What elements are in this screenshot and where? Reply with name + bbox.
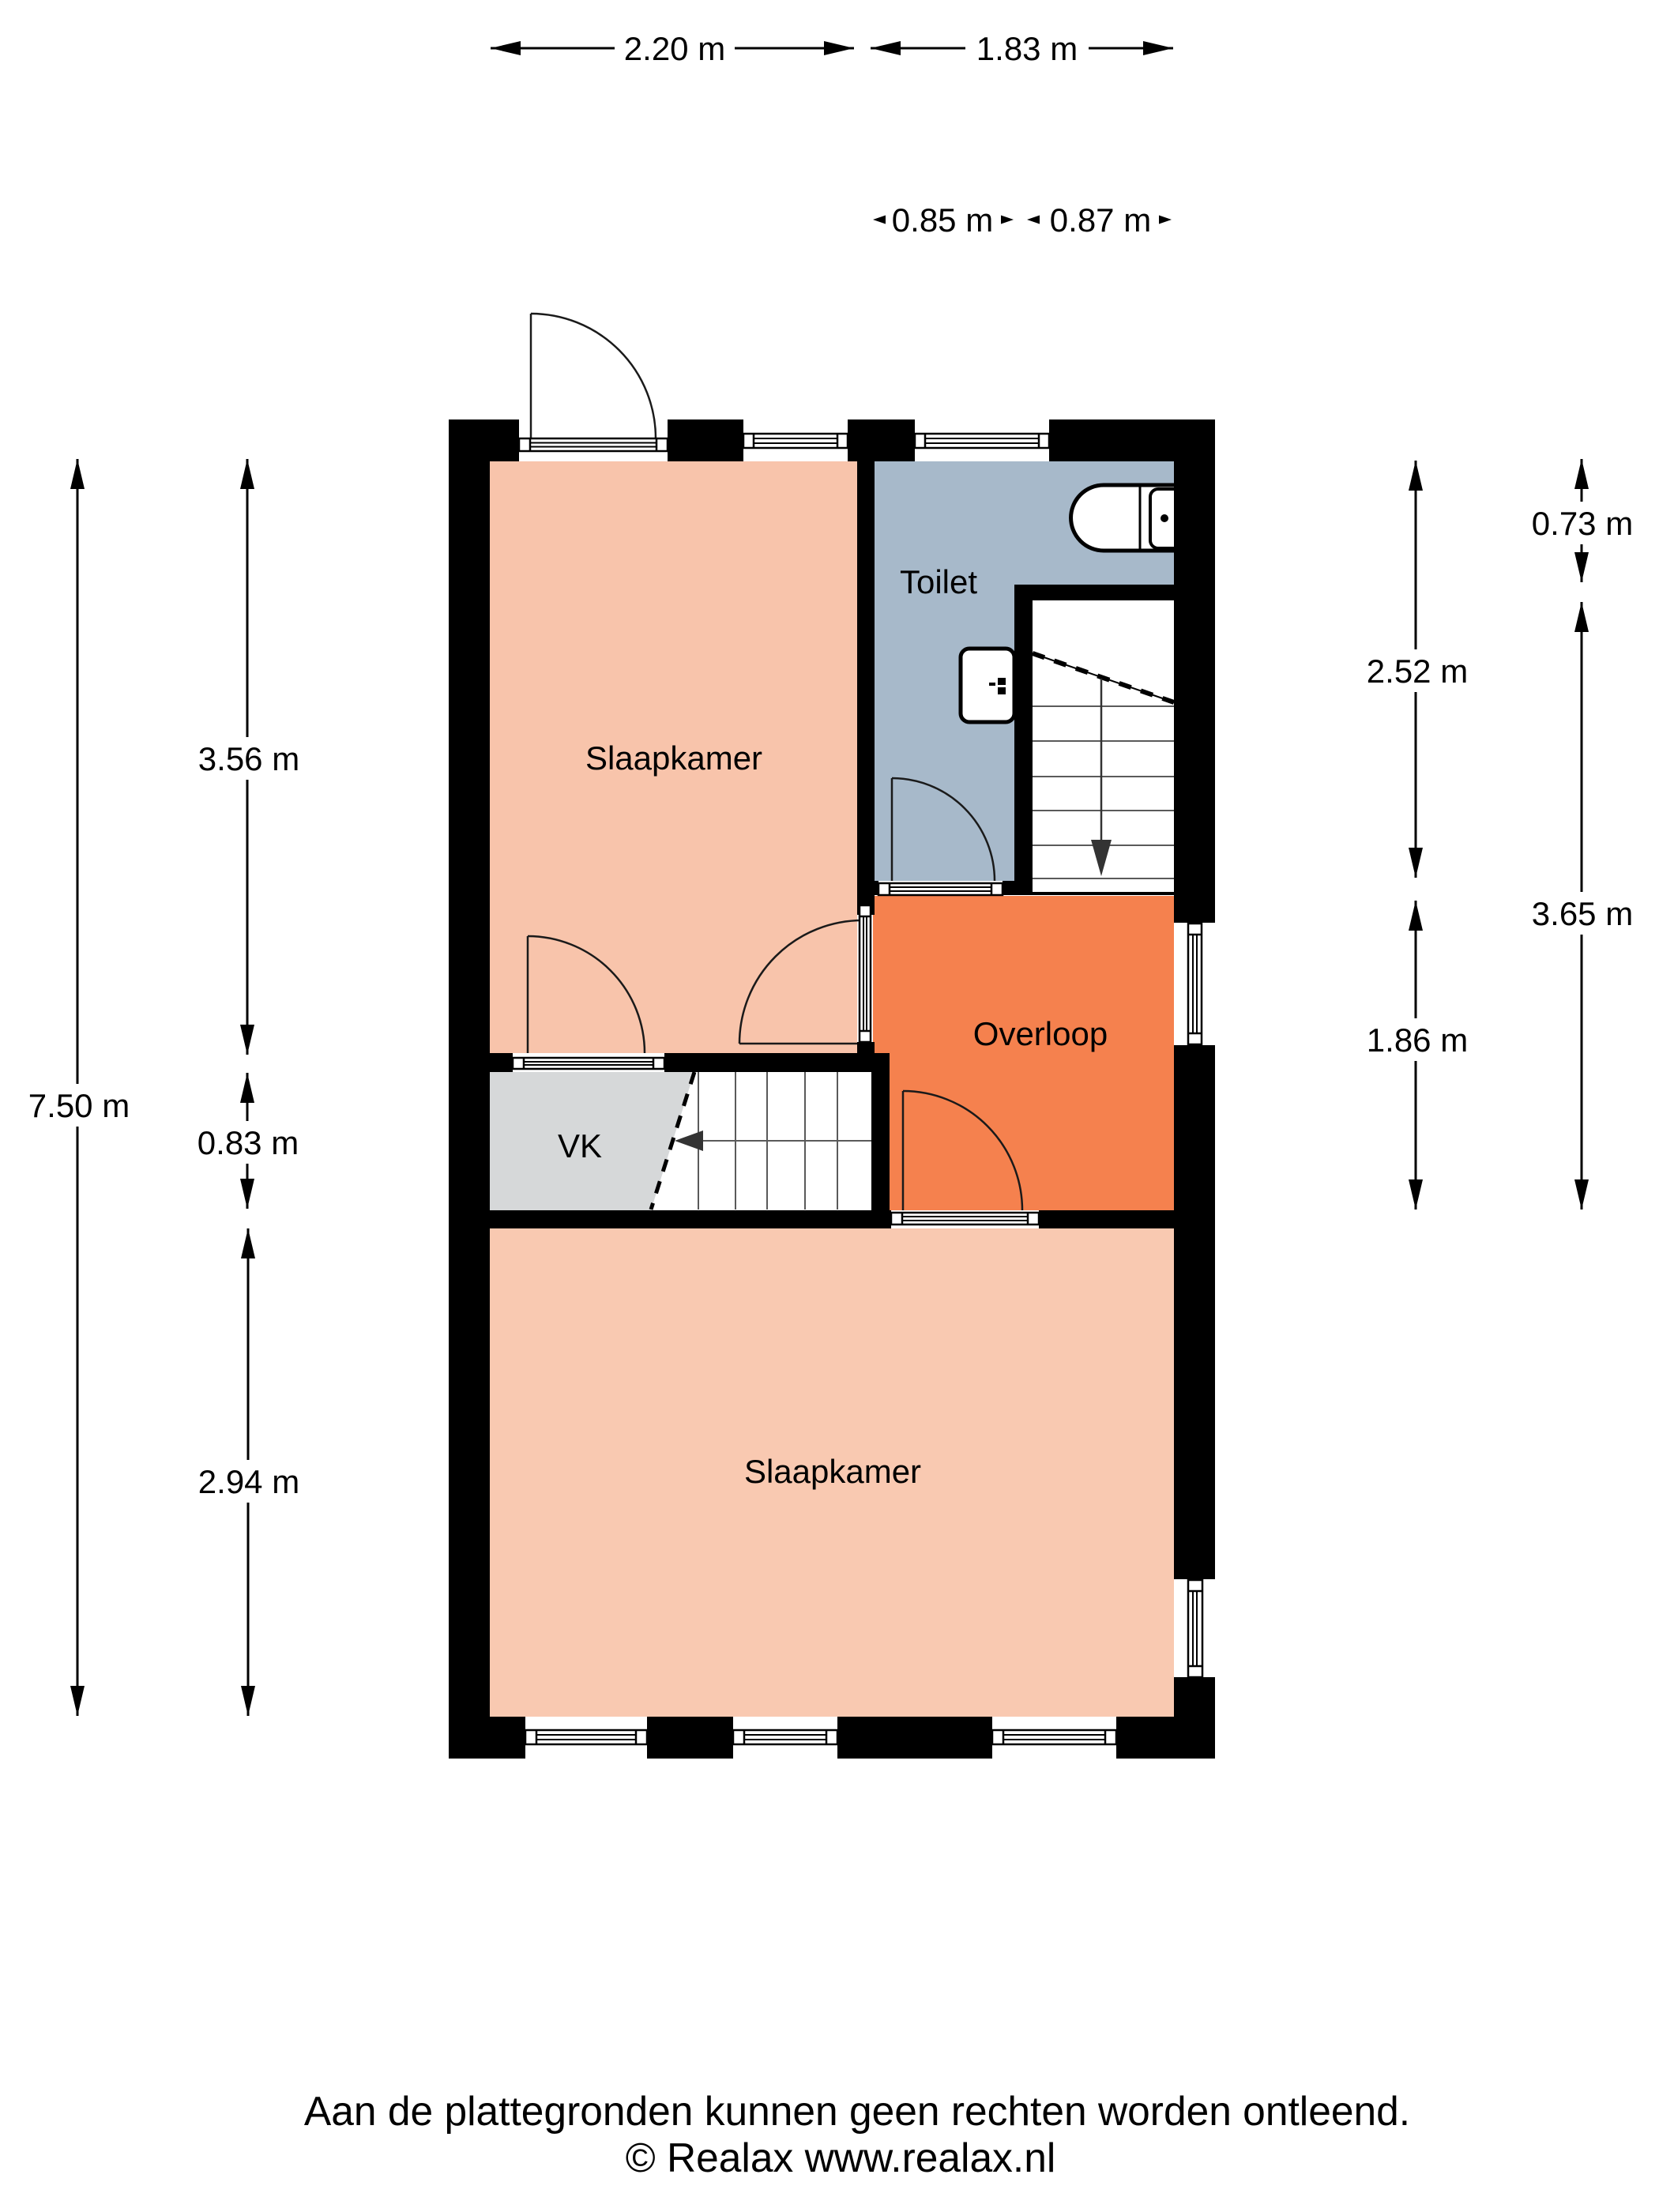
svg-text:Slaapkamer: Slaapkamer: [744, 1453, 921, 1490]
svg-text:3.56 m: 3.56 m: [198, 740, 299, 777]
svg-text:Aan de plattegronden kunnen ge: Aan de plattegronden kunnen geen rechten…: [304, 2088, 1410, 2134]
svg-text:Overloop: Overloop: [973, 1015, 1108, 1052]
svg-text:0.83 m: 0.83 m: [197, 1124, 299, 1161]
svg-text:© Realax www.realax.nl: © Realax www.realax.nl: [626, 2135, 1056, 2180]
svg-text:0.87 m: 0.87 m: [1050, 201, 1151, 239]
svg-text:VK: VK: [558, 1127, 602, 1164]
svg-text:3.65 m: 3.65 m: [1532, 895, 1633, 932]
svg-text:1.86 m: 1.86 m: [1367, 1021, 1468, 1059]
svg-text:0.85 m: 0.85 m: [892, 201, 993, 239]
svg-text:7.50 m: 7.50 m: [28, 1087, 130, 1124]
svg-text:Slaapkamer: Slaapkamer: [585, 739, 762, 777]
svg-text:1.83 m: 1.83 m: [976, 30, 1078, 67]
svg-text:0.73 m: 0.73 m: [1532, 505, 1633, 542]
svg-text:Toilet: Toilet: [900, 563, 977, 600]
svg-text:2.52 m: 2.52 m: [1367, 653, 1468, 690]
svg-text:2.20 m: 2.20 m: [624, 30, 725, 67]
svg-text:2.94 m: 2.94 m: [198, 1463, 299, 1500]
